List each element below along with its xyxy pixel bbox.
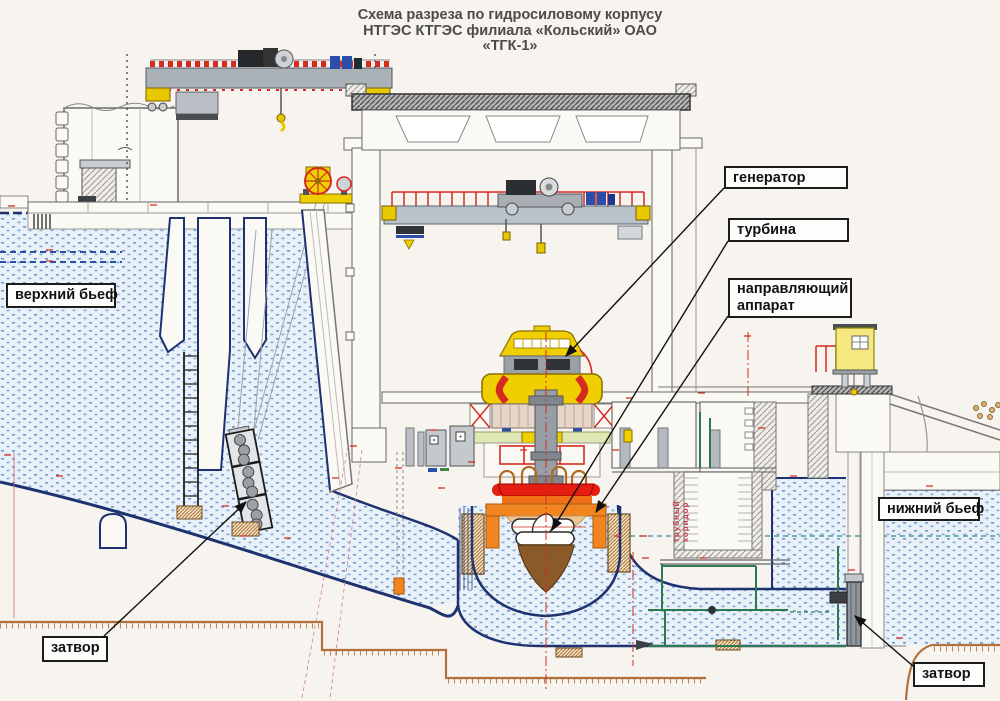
gallery-door [100,514,126,548]
equipment-cabinets [406,426,474,472]
label-gate-left: затвор [42,636,108,662]
label-pipe-corridor: трубный коридор [672,476,690,542]
gate-footing [232,522,259,536]
dam-tower [56,103,178,204]
label-turbine: турбина [728,218,849,242]
tailrace-crane-cab [816,324,877,395]
title-line-2: НТГЭС КТГЭС филиала «Кольский» ОАО [310,24,710,40]
label-gate-right: затвор [913,662,985,687]
label-guide-vanes: направляющий аппарат [728,278,852,318]
pipe-valve [708,606,716,614]
label-lower-pool: нижний бьеф [878,497,980,521]
generator [470,326,614,504]
ladder-footing [177,506,202,519]
bridge-crane [382,178,650,253]
diagram-title: Схема разреза по гидросиловому корпусу Н… [310,8,710,55]
label-generator: генератор [724,166,848,189]
outlet-gate [845,574,863,646]
title-line-3: «ТГК-1» [310,39,710,55]
hydro-section-diagram [0,0,1000,701]
label-upper-pool: верхний бьеф [6,283,116,308]
title-line-1: Схема разреза по гидросиловому корпусу [310,8,710,24]
